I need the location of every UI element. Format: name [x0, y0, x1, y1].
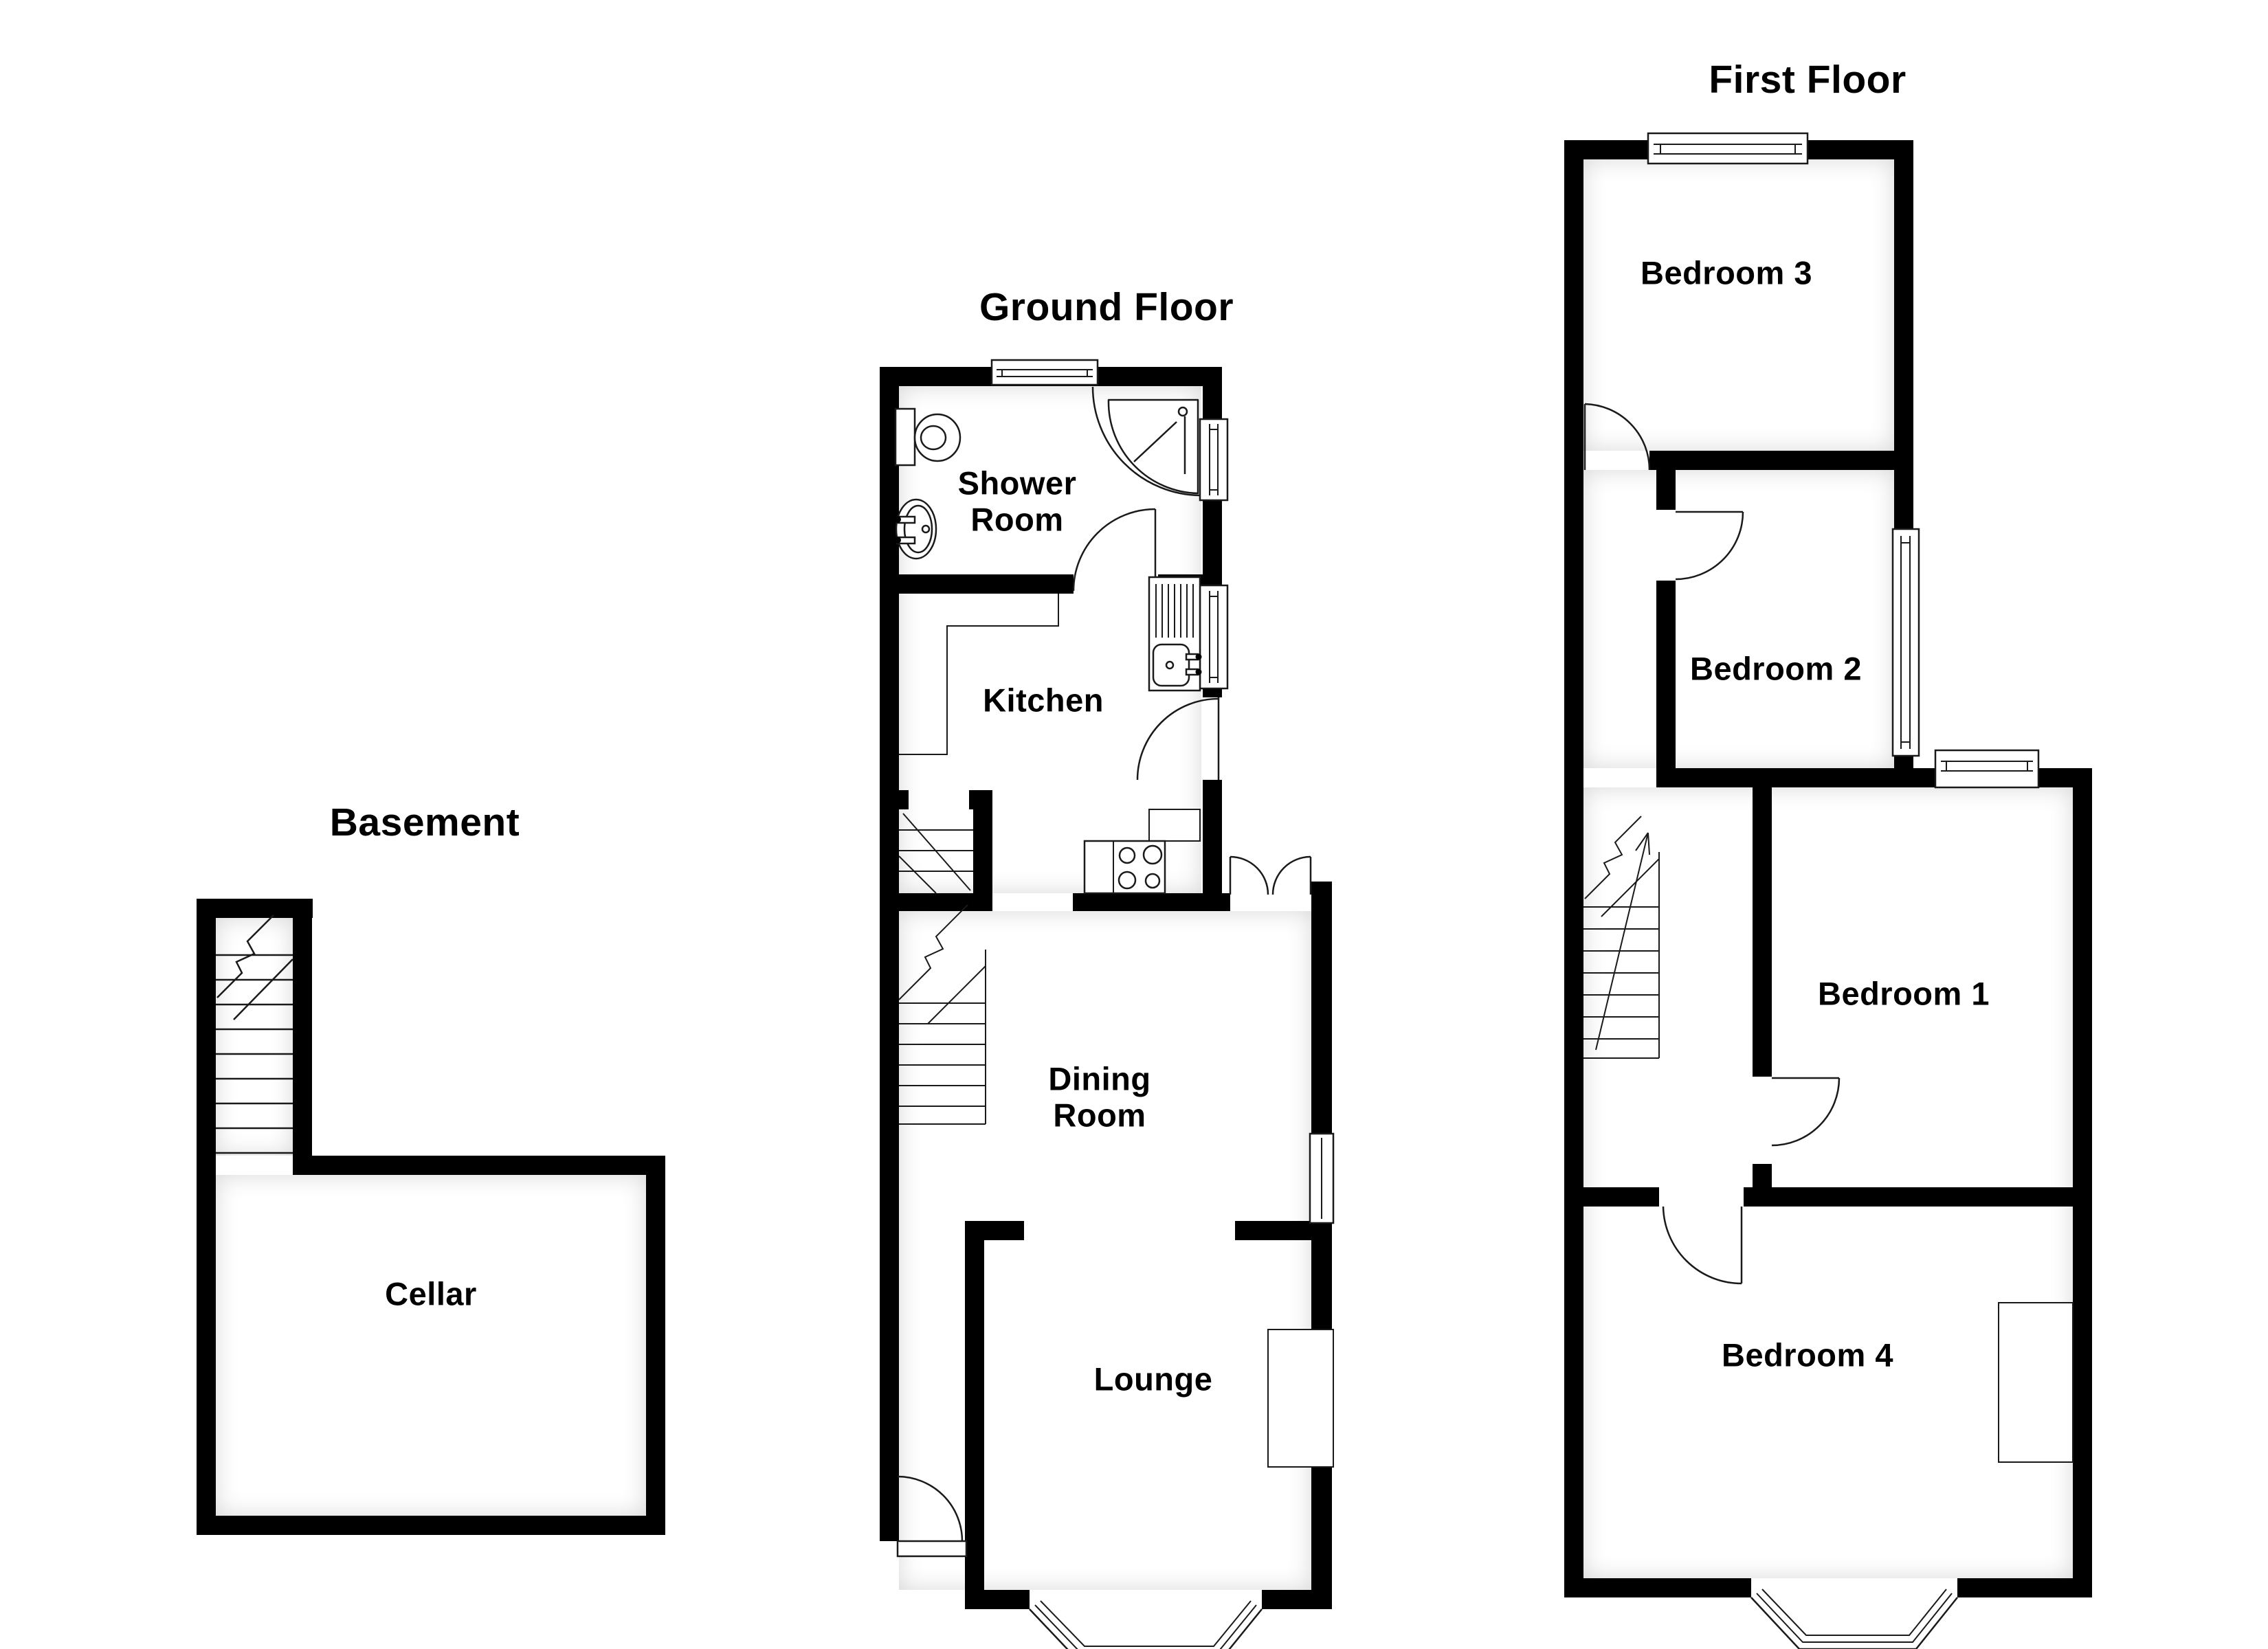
wall: [1564, 140, 1913, 159]
room-label-dining-room: Dining Room: [1048, 1061, 1150, 1133]
room-label-bedroom-3: Bedroom 2: [1690, 651, 1862, 688]
floorplan-page: Basement Ground Floor First Floor Cellar…: [0, 0, 2268, 1649]
cellar-floor: [216, 1175, 646, 1516]
ground-floor-upper-area: [899, 386, 1201, 893]
cellar-stairwell-floor: [216, 918, 293, 1156]
wall: [646, 1156, 665, 1535]
wall: [880, 367, 899, 1541]
wall: [1656, 768, 2092, 787]
wall: [880, 893, 992, 911]
wall: [1203, 780, 1222, 893]
room-label-bedroom-2: Bedroom 1: [1818, 976, 1990, 1013]
wall: [197, 899, 313, 918]
wall: [1564, 1578, 1751, 1597]
wall: [1203, 367, 1222, 697]
window-icon: [1200, 419, 1227, 500]
wall: [2073, 787, 2092, 1597]
room-label-lounge: Lounge: [1094, 1362, 1213, 1398]
wall: [197, 1516, 665, 1535]
window-icon: [1893, 529, 1919, 756]
room-label-cellar: Cellar: [385, 1277, 477, 1313]
room-label-bedroom-4: Bedroom 3: [1641, 256, 1812, 292]
floor-title-ground-floor: Ground Floor: [979, 286, 1234, 330]
wall: [1073, 893, 1230, 911]
bay-window-icon: [1751, 1589, 1957, 1649]
wall: [293, 899, 312, 1156]
floor-title-first-floor: First Floor: [1709, 58, 1906, 102]
first-floor-bedroom4-area: [1583, 159, 1894, 451]
bay-window-icon: [1030, 1601, 1262, 1649]
wall: [880, 367, 1222, 386]
window-icon: [1935, 750, 2038, 787]
room-label-kitchen: Kitchen: [983, 683, 1104, 719]
wall: [1957, 1578, 2092, 1597]
wall: [1564, 140, 1583, 1597]
wall: [965, 1590, 1030, 1609]
wall: [1649, 451, 1913, 470]
room-label-bedroom-1: Bedroom 4: [1722, 1338, 1893, 1374]
wall: [1894, 140, 1913, 787]
window-icon: [992, 360, 1098, 385]
first-floor-lower-area: [1583, 787, 2073, 1578]
french-doors-icon: [1230, 857, 1311, 895]
wall: [197, 899, 216, 1535]
first-floor-bedroom3-area: [1583, 470, 1894, 768]
ground-floor-lower-area: [899, 911, 1311, 1590]
wall: [1262, 1590, 1332, 1609]
wall: [293, 1156, 665, 1175]
window-icon: [1200, 585, 1227, 688]
wall: [1311, 882, 1332, 1609]
window-icon: [1310, 1134, 1333, 1223]
floor-title-basement: Basement: [330, 801, 520, 845]
room-label-shower-room: Shower Room: [958, 465, 1077, 537]
